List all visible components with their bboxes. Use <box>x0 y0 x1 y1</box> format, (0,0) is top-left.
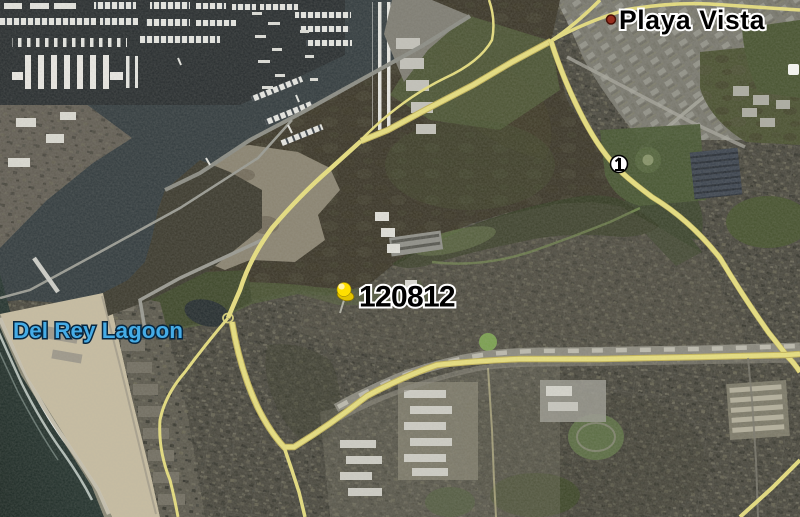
svg-text:120812: 120812 <box>359 281 455 314</box>
svg-text:Playa Vista: Playa Vista <box>619 5 765 35</box>
svg-text:Del Rey Lagoon: Del Rey Lagoon <box>13 318 183 343</box>
